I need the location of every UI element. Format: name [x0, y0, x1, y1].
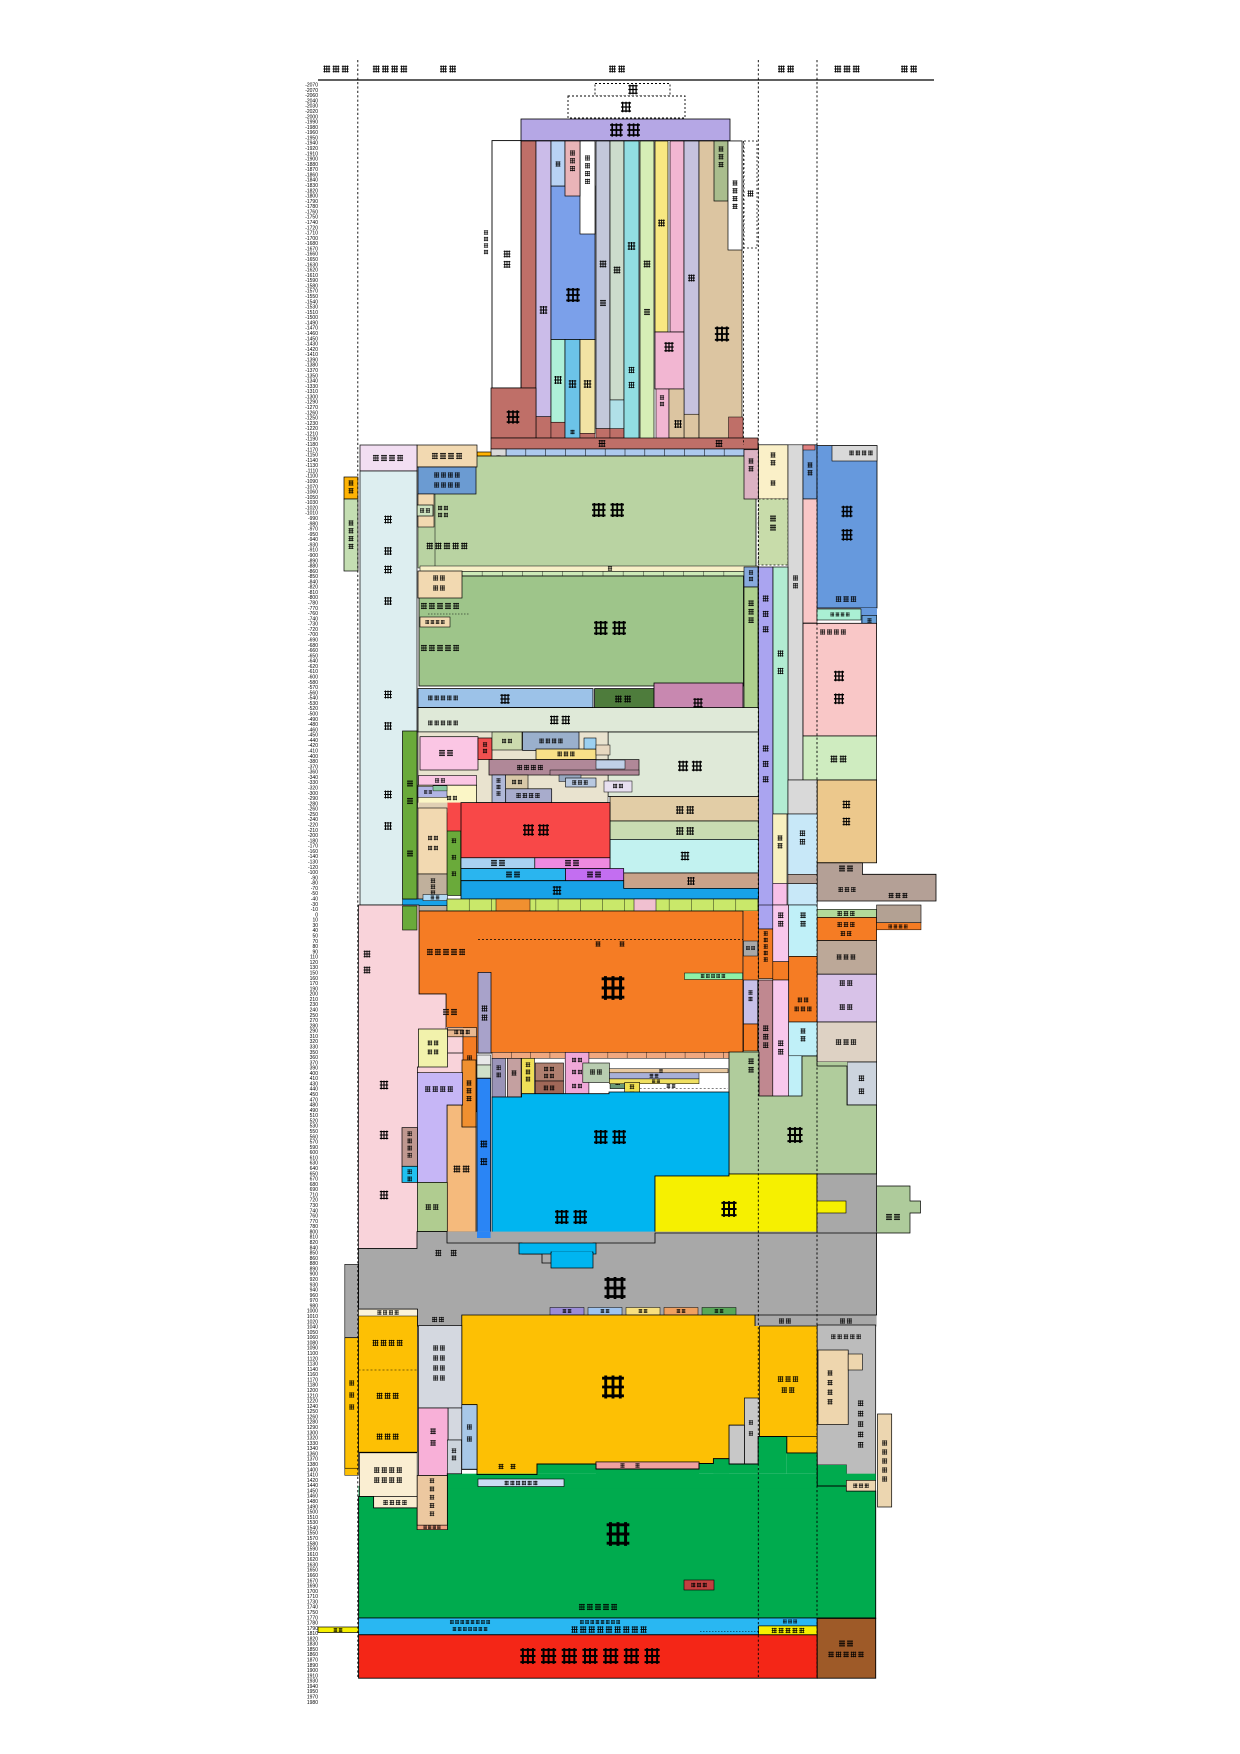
svg-text:1980: 1980: [307, 1700, 318, 1706]
